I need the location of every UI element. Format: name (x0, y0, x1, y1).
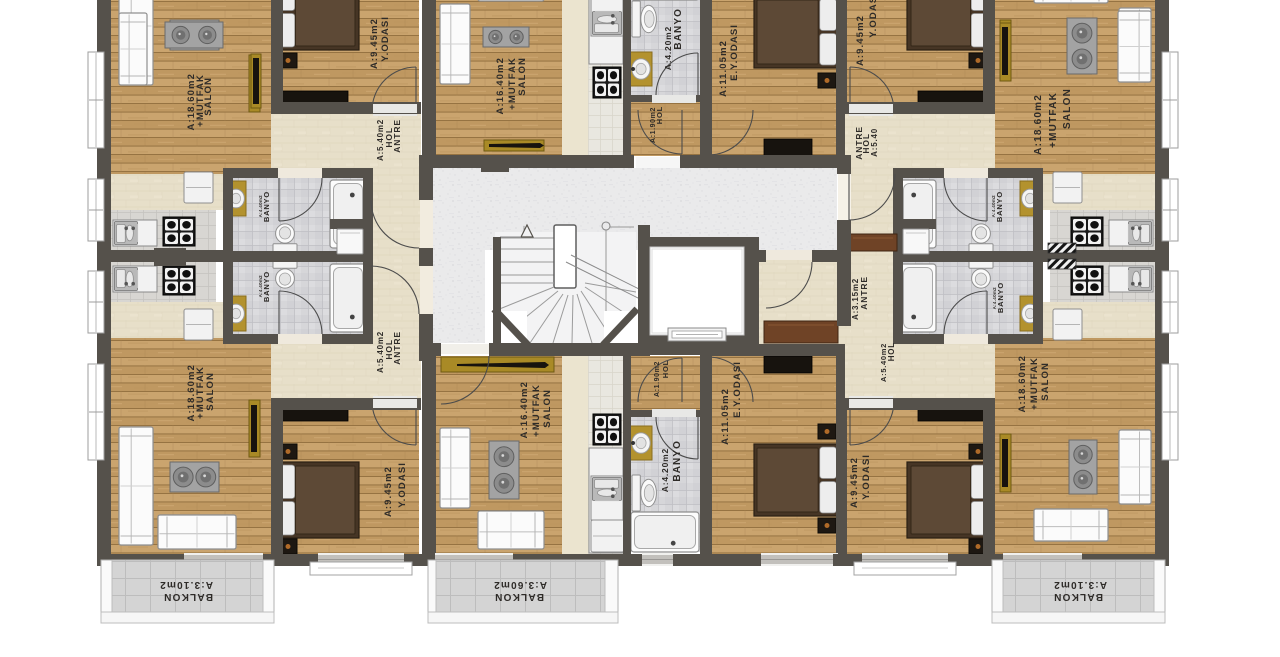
svg-text:HOL: HOL (384, 339, 394, 360)
svg-text:BANYO: BANYO (262, 271, 271, 302)
svg-text:A:5.40m2: A:5.40m2 (879, 343, 888, 382)
svg-text:HOL: HOL (887, 342, 896, 361)
svg-text:E.Y.ODASI: E.Y.ODASI (732, 361, 743, 418)
svg-text:BALKON: BALKON (1053, 591, 1103, 602)
svg-text:A:3.10m2: A:3.10m2 (1053, 579, 1107, 590)
svg-text:A:16.40m2: A:16.40m2 (519, 381, 530, 438)
svg-text:A:9.45m2: A:9.45m2 (369, 18, 380, 69)
svg-text:Y.ODASI: Y.ODASI (380, 16, 391, 62)
svg-text:A:1.90m2: A:1.90m2 (650, 107, 657, 143)
svg-text:A:4.20m2: A:4.20m2 (660, 448, 670, 492)
svg-text:A:11.05m2: A:11.05m2 (720, 388, 731, 445)
svg-text:BALKON: BALKON (163, 591, 213, 602)
svg-text:A:9.45m2: A:9.45m2 (849, 457, 860, 508)
svg-text:HOL: HOL (384, 127, 394, 148)
svg-text:SALON: SALON (1062, 88, 1073, 129)
svg-text:SALON: SALON (542, 389, 553, 428)
svg-text:Y.ODASI: Y.ODASI (868, 0, 879, 38)
svg-text:+MUTFAK: +MUTFAK (1048, 92, 1059, 148)
svg-text:A:4.40m2: A:4.40m2 (992, 287, 997, 310)
svg-text:E.Y.ODASI: E.Y.ODASI (729, 24, 740, 81)
svg-text:A:9.45m2: A:9.45m2 (383, 466, 394, 517)
svg-text:BANYO: BANYO (673, 8, 684, 50)
svg-text:ANTRE: ANTRE (859, 276, 869, 310)
svg-text:BALKON: BALKON (494, 591, 544, 602)
svg-text:Y.ODASI: Y.ODASI (397, 462, 408, 508)
svg-text:A:3.10m2: A:3.10m2 (159, 579, 213, 590)
svg-text:BANYO: BANYO (672, 440, 683, 482)
svg-text:A:18.60m2: A:18.60m2 (1017, 355, 1028, 412)
svg-text:A:5.40m2: A:5.40m2 (376, 119, 385, 161)
svg-text:SALON: SALON (205, 372, 216, 411)
svg-text:+MUTFAK: +MUTFAK (1029, 357, 1040, 410)
svg-text:A:16.40m2: A:16.40m2 (495, 57, 506, 114)
svg-text:HOL: HOL (661, 360, 670, 378)
svg-text:A:9.45m2: A:9.45m2 (855, 15, 866, 66)
svg-text:A:18.60m2: A:18.60m2 (186, 364, 197, 421)
svg-text:A:4.40m2: A:4.40m2 (258, 195, 263, 218)
svg-text:A:1.90m2: A:1.90m2 (654, 361, 661, 397)
svg-text:A:5.40: A:5.40 (870, 128, 879, 157)
svg-text:A:4.20m2: A:4.20m2 (663, 26, 673, 70)
svg-text:A:11.05m2: A:11.05m2 (718, 40, 729, 97)
svg-text:SALON: SALON (1040, 362, 1051, 401)
svg-text:+MUTFAK: +MUTFAK (507, 57, 518, 110)
svg-text:+MUTFAK: +MUTFAK (531, 384, 542, 437)
svg-text:BANYO: BANYO (995, 191, 1004, 222)
svg-text:BANYO: BANYO (996, 282, 1005, 313)
svg-text:A:3.15m2: A:3.15m2 (851, 278, 860, 320)
svg-text:Y.ODASI: Y.ODASI (861, 454, 872, 500)
svg-text:A:18.60m2: A:18.60m2 (186, 73, 197, 130)
svg-text:A:4.40m2: A:4.40m2 (991, 195, 996, 218)
svg-text:BANYO: BANYO (262, 191, 271, 222)
svg-text:A:4.40m2: A:4.40m2 (258, 275, 263, 298)
svg-text:A:3.60m2: A:3.60m2 (493, 579, 547, 590)
svg-text:SALON: SALON (517, 57, 528, 96)
svg-text:A:18.60m2: A:18.60m2 (1033, 94, 1044, 155)
svg-text:A:5.40m2: A:5.40m2 (376, 331, 385, 373)
